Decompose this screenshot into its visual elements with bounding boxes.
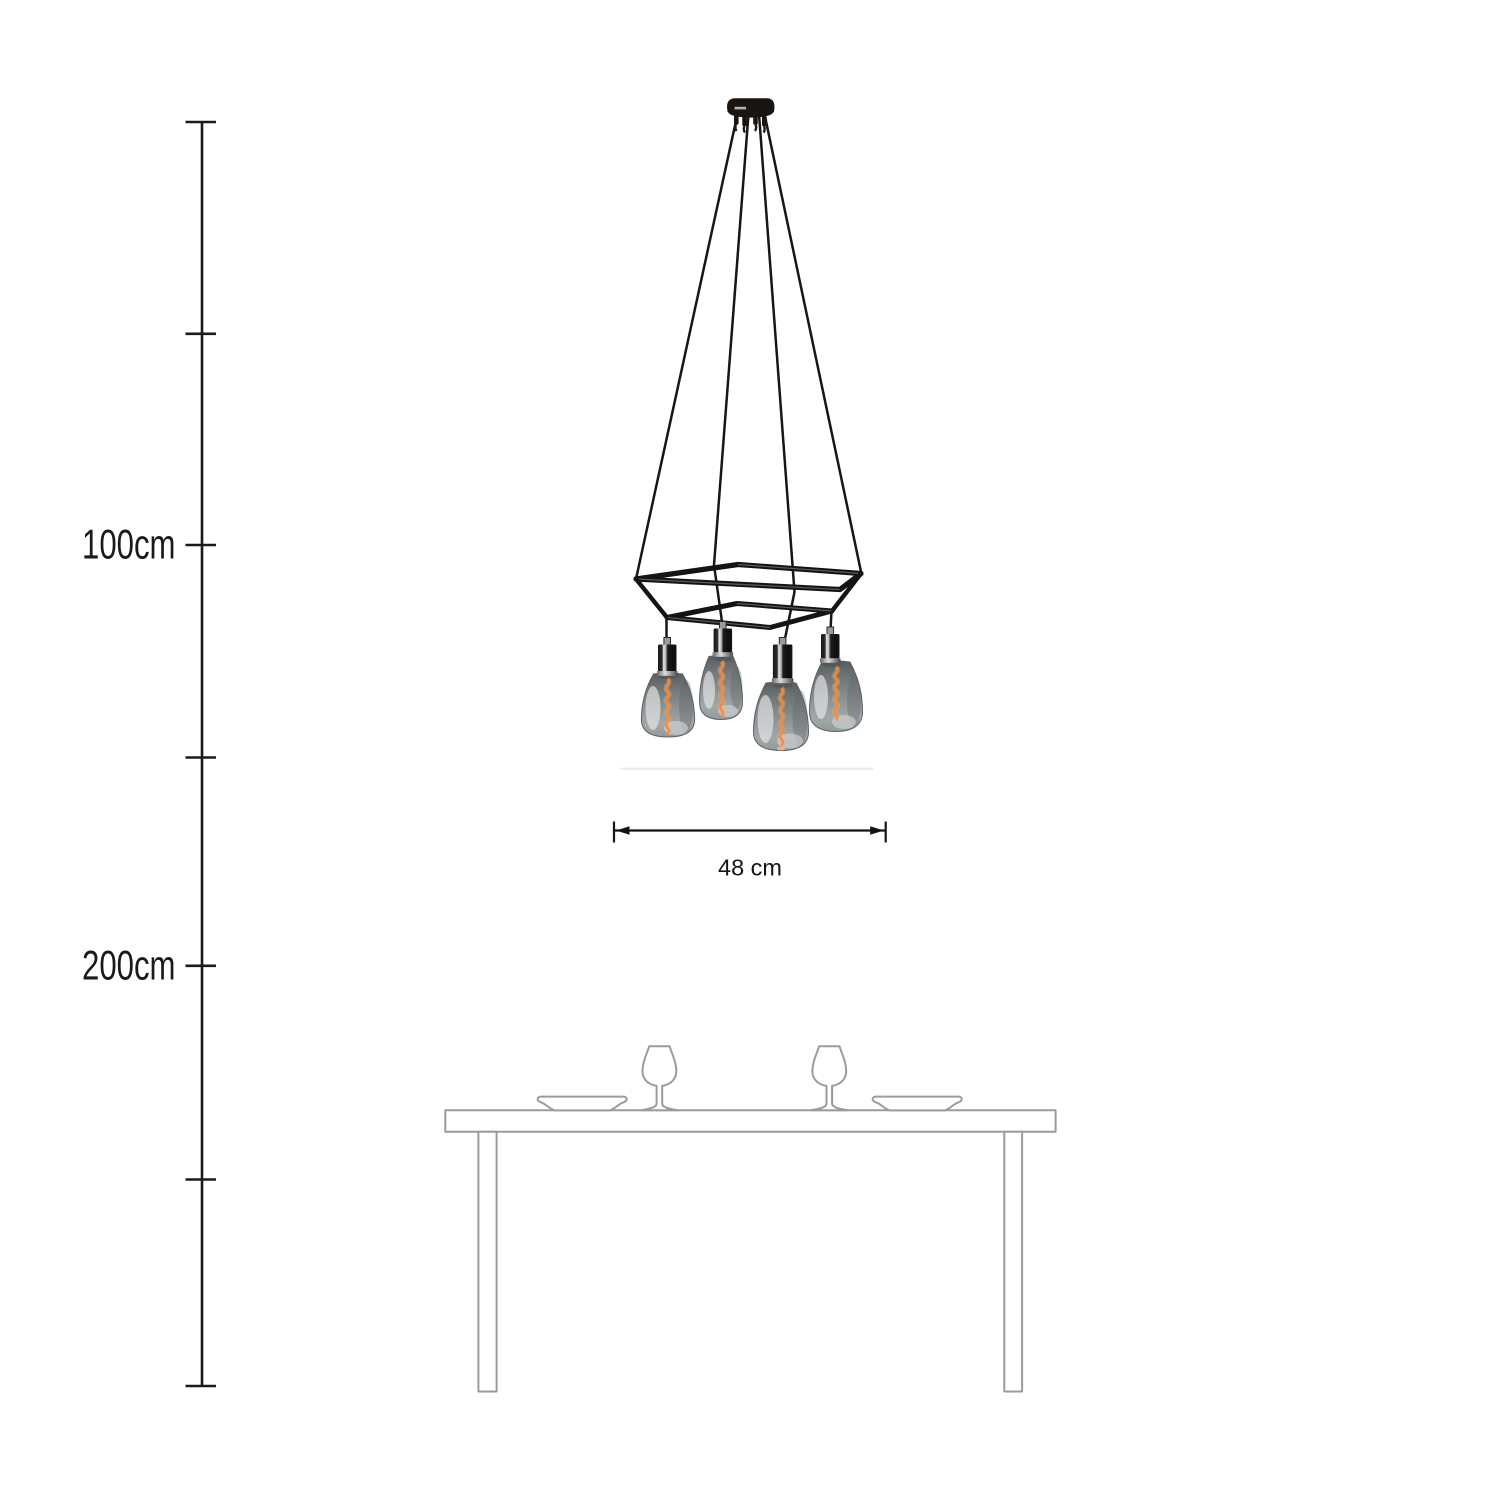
svg-text:200cm: 200cm — [82, 941, 176, 988]
svg-text:100cm: 100cm — [82, 521, 176, 568]
svg-text:48 cm: 48 cm — [718, 855, 782, 881]
